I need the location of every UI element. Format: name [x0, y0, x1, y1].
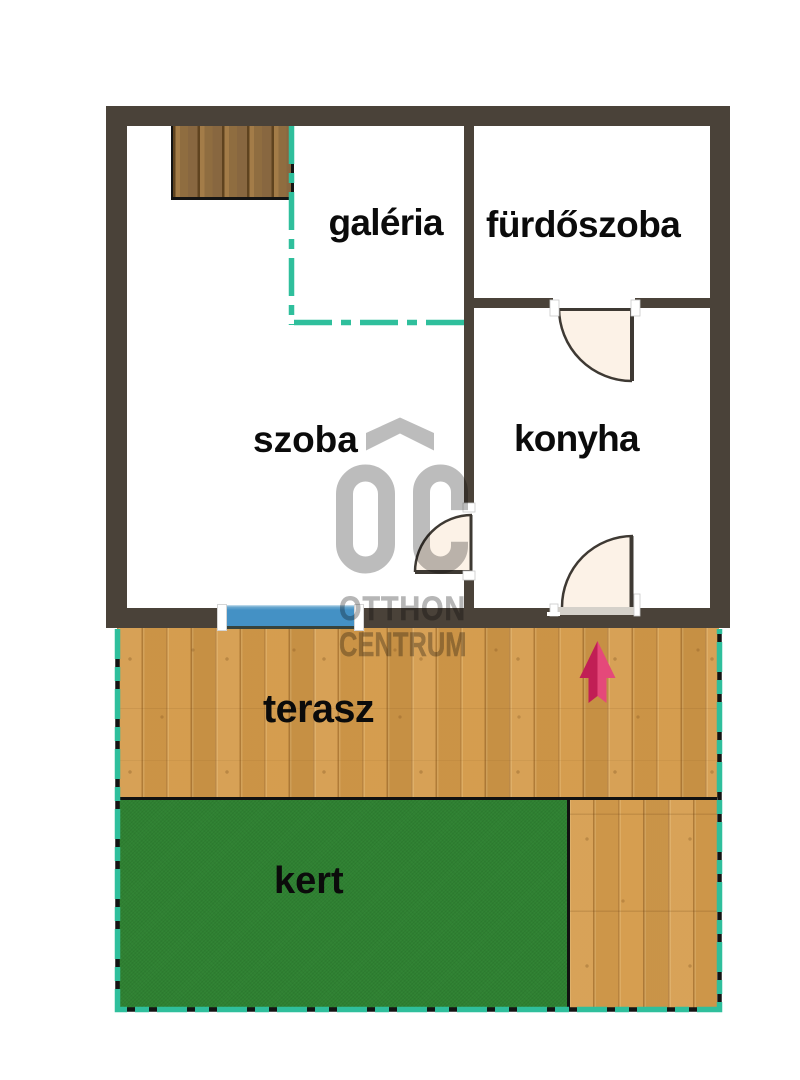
svg-text:CENTRUM: CENTRUM — [339, 627, 466, 664]
svg-text:OTTHON: OTTHON — [339, 589, 466, 628]
